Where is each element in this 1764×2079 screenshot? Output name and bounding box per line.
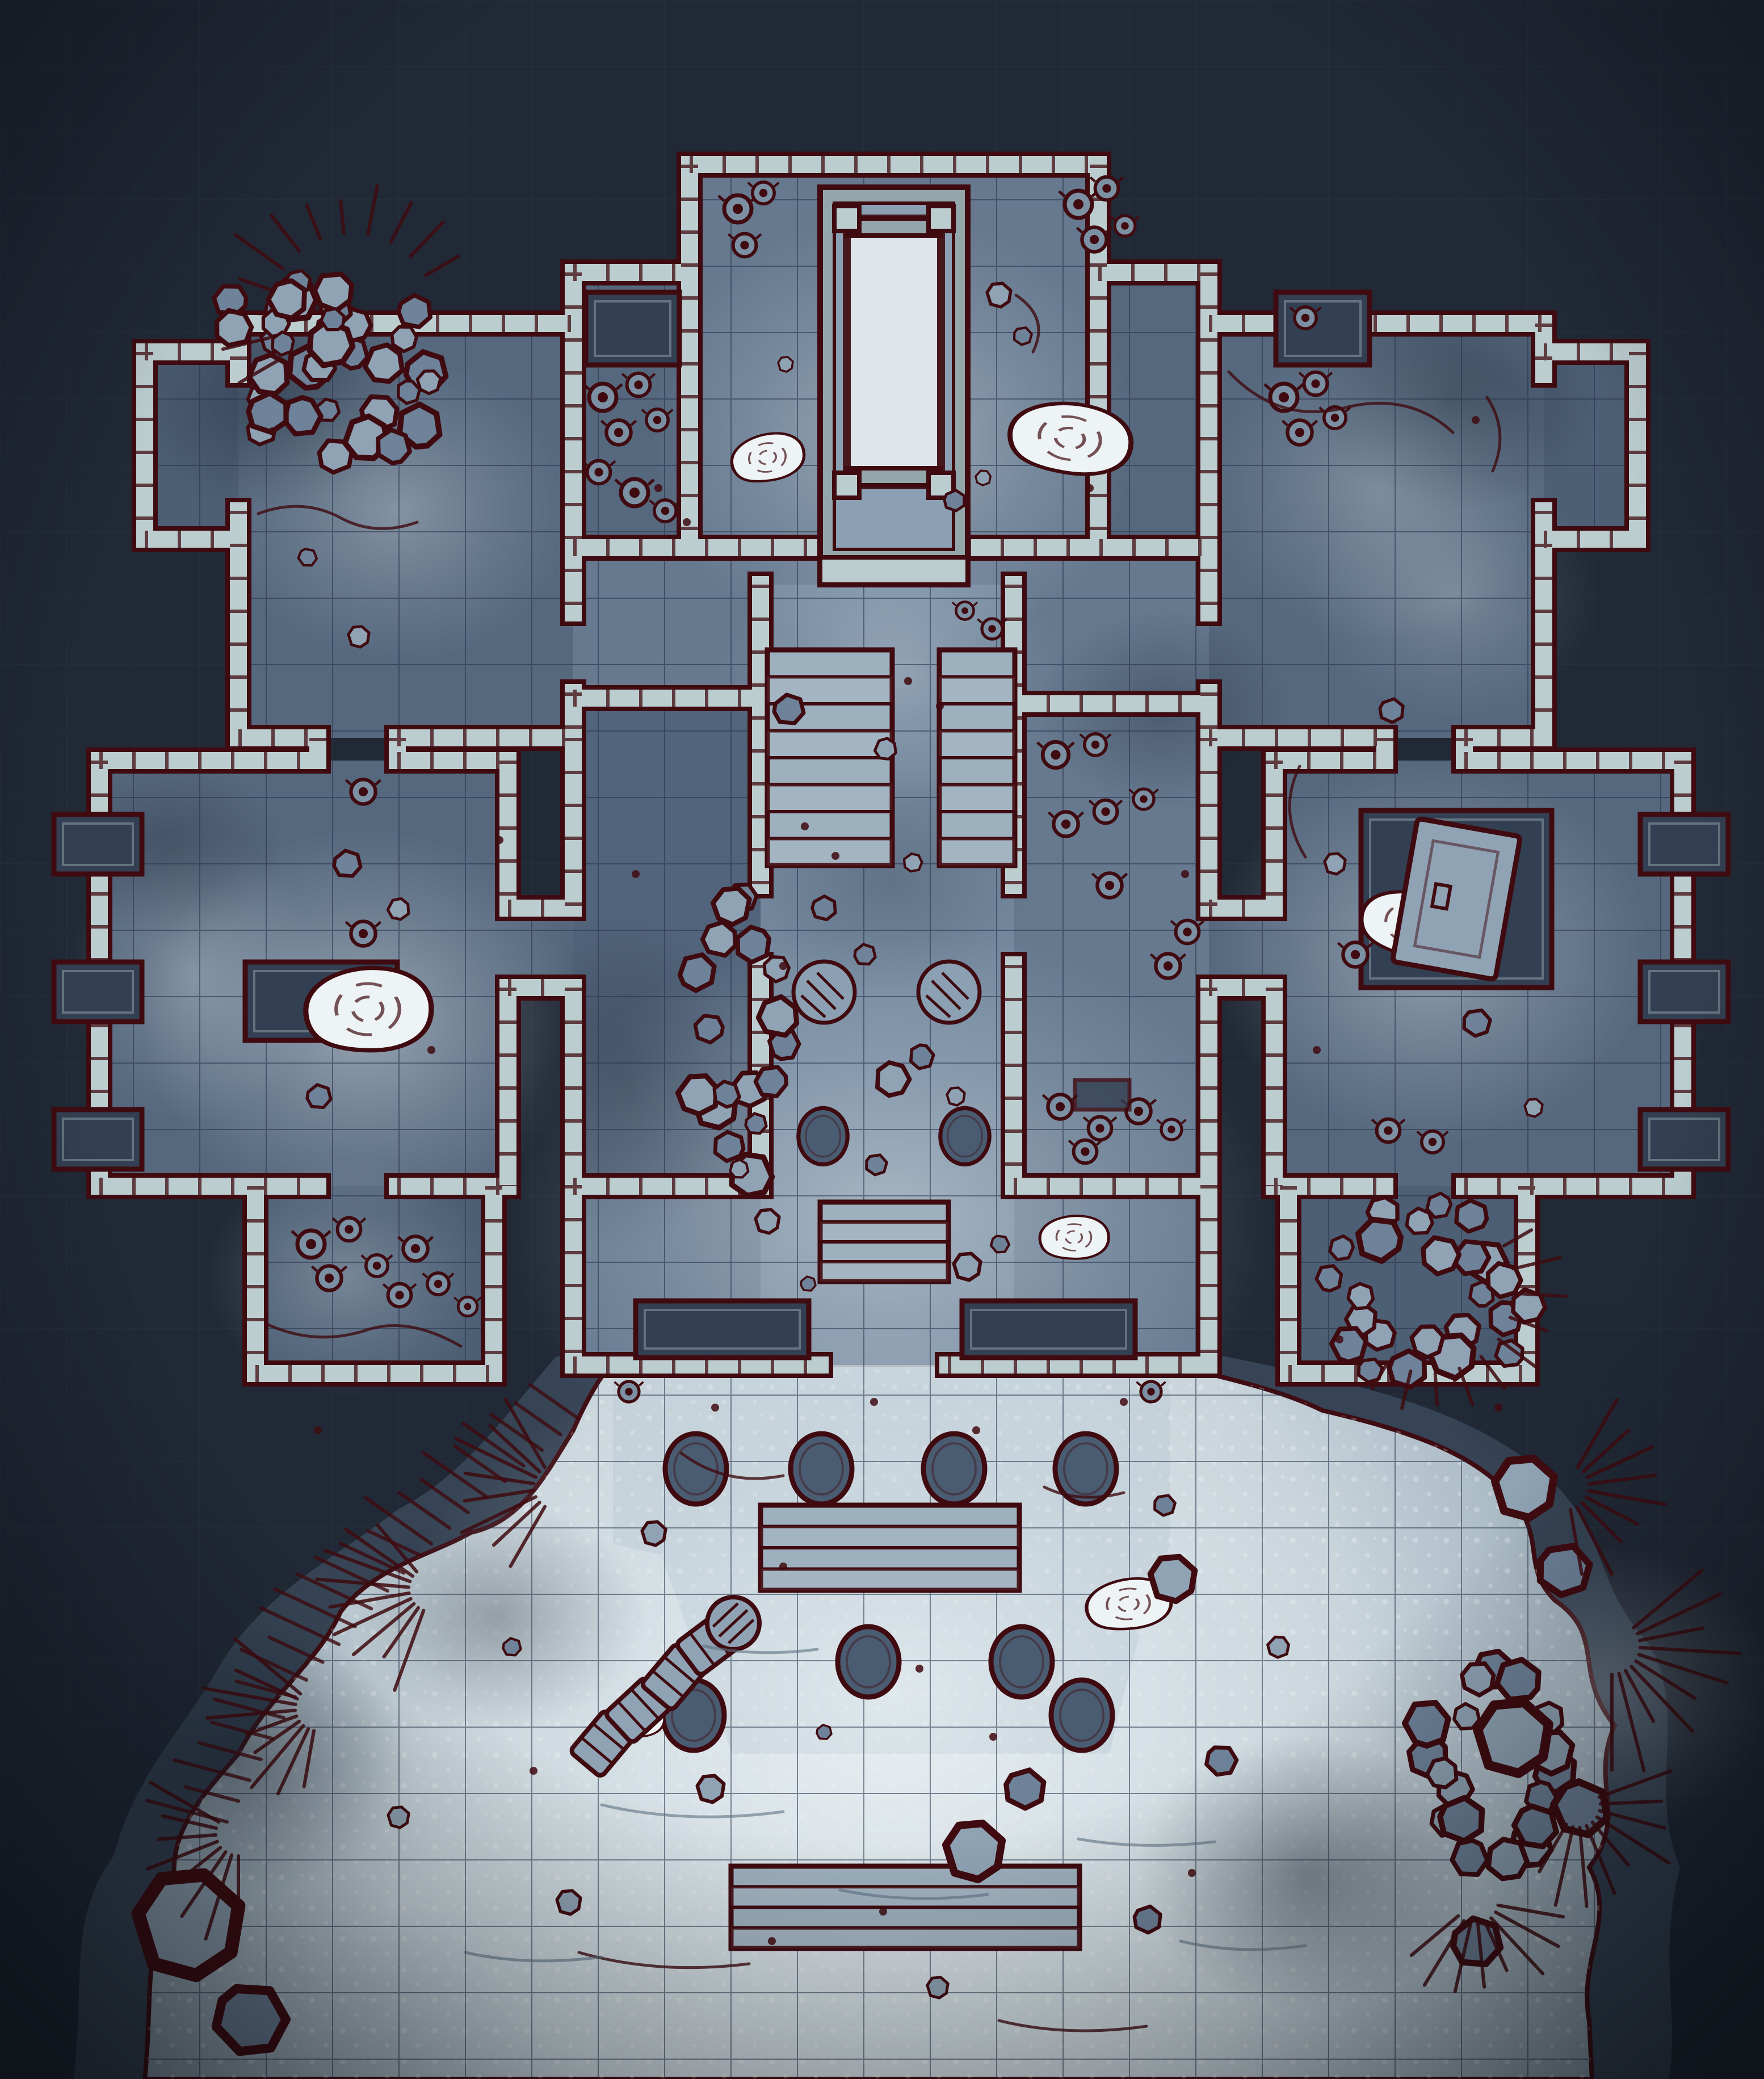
- battle-map-page: [0, 0, 1764, 2079]
- frozen-temple-battle-map: [0, 0, 1764, 2079]
- vignette: [0, 0, 1764, 2079]
